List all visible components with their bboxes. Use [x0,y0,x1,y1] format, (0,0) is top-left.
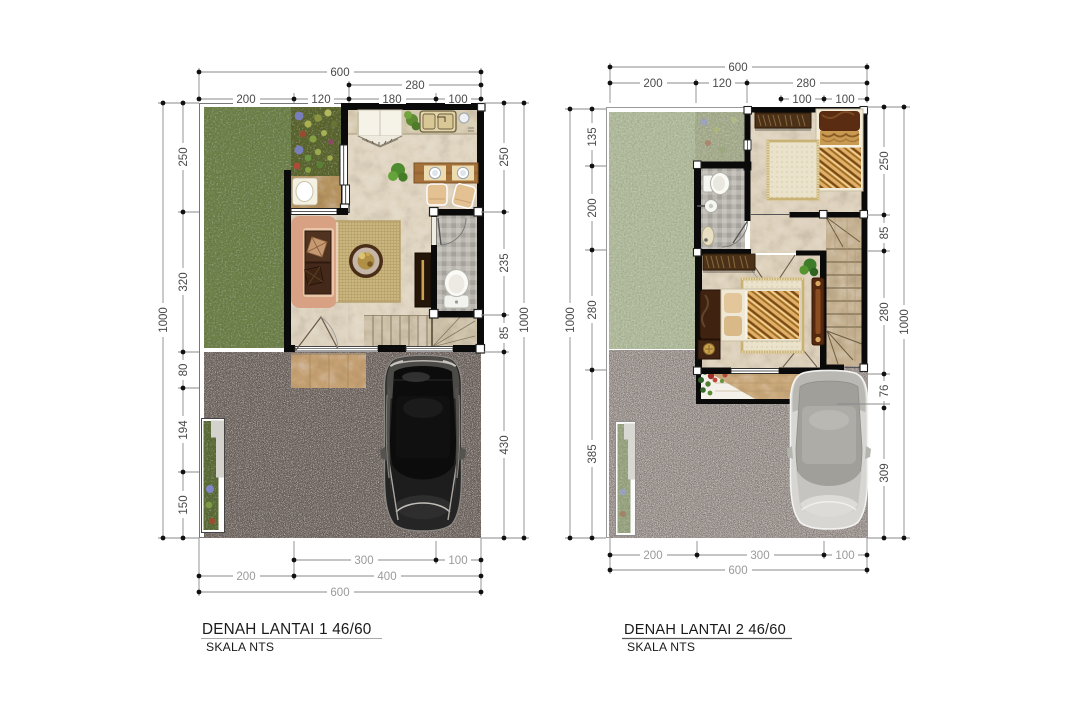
svg-text:300: 300 [354,555,373,567]
svg-text:200: 200 [643,550,662,562]
svg-text:309: 309 [879,463,891,482]
svg-text:SKALA NTS: SKALA NTS [627,640,695,654]
svg-text:600: 600 [330,587,349,599]
svg-text:100: 100 [835,94,854,106]
svg-text:600: 600 [728,62,747,74]
svg-text:1000: 1000 [158,307,170,333]
svg-text:200: 200 [643,78,662,90]
svg-text:250: 250 [499,147,511,166]
svg-text:200: 200 [236,571,255,583]
svg-text:430: 430 [499,435,511,454]
svg-text:280: 280 [796,78,815,90]
svg-text:180: 180 [382,94,401,106]
svg-text:100: 100 [835,550,854,562]
svg-text:150: 150 [178,495,190,514]
svg-text:DENAH LANTAI 1 46/60: DENAH LANTAI 1 46/60 [202,621,372,638]
svg-text:600: 600 [330,67,349,79]
svg-text:85: 85 [879,227,891,240]
svg-text:280: 280 [879,302,891,321]
svg-text:80: 80 [178,364,190,377]
svg-text:85: 85 [499,327,511,340]
svg-text:1000: 1000 [565,307,577,333]
svg-text:SKALA NTS: SKALA NTS [206,640,274,654]
svg-text:100: 100 [792,94,811,106]
svg-text:DENAH LANTAI 2 46/60: DENAH LANTAI 2 46/60 [624,622,786,638]
svg-text:235: 235 [499,253,511,272]
svg-text:250: 250 [879,151,891,170]
svg-text:200: 200 [236,94,255,106]
svg-text:194: 194 [178,420,190,440]
svg-text:76: 76 [879,385,891,398]
svg-text:385: 385 [587,444,599,463]
svg-text:600: 600 [728,565,747,577]
svg-text:400: 400 [377,571,396,583]
svg-text:250: 250 [178,147,190,166]
svg-text:120: 120 [712,78,731,90]
svg-text:100: 100 [448,555,467,567]
svg-text:280: 280 [587,300,599,319]
svg-text:120: 120 [311,94,330,106]
svg-text:320: 320 [178,272,190,291]
svg-text:200: 200 [587,198,599,217]
svg-text:280: 280 [405,80,424,92]
svg-text:1000: 1000 [519,307,531,333]
svg-text:135: 135 [587,127,599,146]
svg-text:100: 100 [448,94,467,106]
svg-text:300: 300 [750,550,769,562]
svg-text:1000: 1000 [899,309,911,335]
